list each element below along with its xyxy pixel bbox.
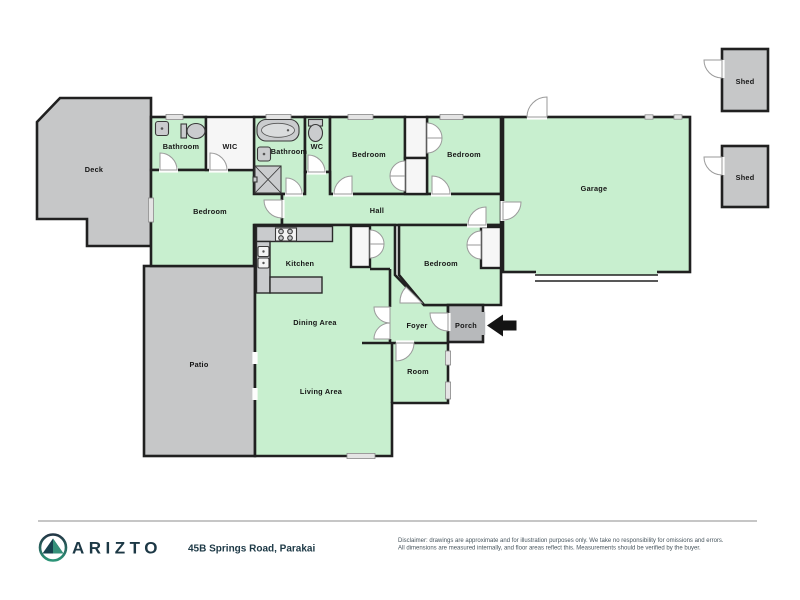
label-dining: Dining Area bbox=[293, 318, 337, 327]
label-hall: Hall bbox=[370, 206, 384, 215]
kitchen-counter bbox=[270, 277, 322, 293]
slider-opening bbox=[252, 388, 257, 400]
window bbox=[674, 115, 682, 119]
label-bedroom-top-left: Bedroom bbox=[352, 150, 386, 159]
label-bedroom-middle: Bedroom bbox=[424, 259, 458, 268]
label-kitchen: Kitchen bbox=[286, 259, 315, 268]
label-shed-bottom: Shed bbox=[736, 173, 755, 182]
label-bathroom-main: Bathroom bbox=[271, 147, 308, 156]
floorplan: Deck Bathroom WIC Bathroom WC Bedroom Be… bbox=[0, 0, 800, 600]
disclaimer-line-2: All dimensions are measured internally, … bbox=[398, 546, 701, 552]
garage-door-gap bbox=[536, 269, 657, 274]
arizto-logo-icon bbox=[40, 535, 66, 561]
window bbox=[347, 453, 375, 458]
window bbox=[445, 382, 450, 399]
toilet-icon bbox=[187, 124, 205, 139]
label-bedroom-master: Bedroom bbox=[193, 207, 227, 216]
window bbox=[445, 351, 450, 365]
label-bedroom-top-right: Bedroom bbox=[447, 150, 481, 159]
window bbox=[348, 114, 373, 119]
window bbox=[148, 198, 153, 222]
label-porch: Porch bbox=[455, 321, 477, 330]
label-wc: WC bbox=[311, 142, 324, 151]
label-wic: WIC bbox=[223, 142, 238, 151]
label-living: Living Area bbox=[300, 387, 343, 396]
label-garage: Garage bbox=[581, 184, 608, 193]
property-address: 45B Springs Road, Parakai bbox=[188, 544, 315, 555]
window bbox=[645, 115, 653, 119]
entrance-arrow-icon bbox=[487, 315, 517, 337]
label-shed-top: Shed bbox=[736, 77, 755, 86]
window bbox=[440, 114, 463, 119]
window bbox=[266, 114, 291, 119]
porch-opening bbox=[481, 312, 485, 335]
floorplan-page: Deck Bathroom WIC Bathroom WC Bedroom Be… bbox=[0, 0, 800, 600]
door-arc bbox=[704, 60, 722, 78]
label-patio: Patio bbox=[189, 360, 208, 369]
label-foyer: Foyer bbox=[406, 321, 427, 330]
room-garage bbox=[503, 117, 690, 272]
label-room: Room bbox=[407, 367, 429, 376]
disclaimer-line-1: Disclaimer: drawings are approximate and… bbox=[398, 538, 724, 544]
closet bbox=[405, 117, 427, 158]
door-arc bbox=[527, 97, 547, 117]
closet bbox=[405, 158, 427, 194]
door-arc bbox=[704, 157, 722, 175]
closet bbox=[481, 227, 501, 268]
toilet-icon bbox=[309, 125, 323, 142]
toilet-icon bbox=[181, 124, 187, 138]
label-deck: Deck bbox=[85, 165, 104, 174]
window bbox=[166, 114, 183, 119]
closet bbox=[351, 226, 370, 267]
brand-name: ARIZTO bbox=[72, 539, 162, 558]
footer: ARIZTO 45B Springs Road, Parakai Disclai… bbox=[38, 521, 757, 561]
label-bathroom-ensuite: Bathroom bbox=[163, 142, 200, 151]
slider-opening bbox=[252, 352, 257, 364]
